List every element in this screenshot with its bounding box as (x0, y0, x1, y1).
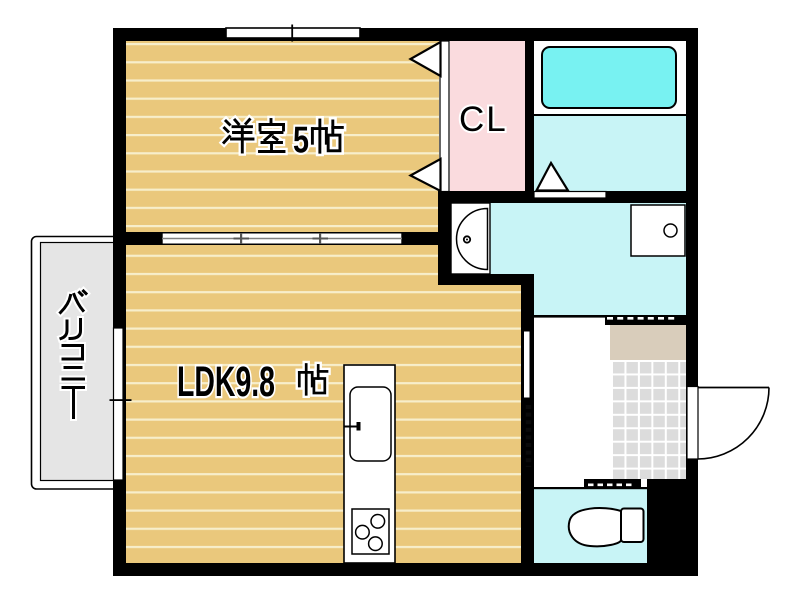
svg-text:CL: CL (459, 100, 508, 139)
svg-text:LDK9.8: LDK9.8 (177, 358, 275, 406)
svg-text:5: 5 (293, 120, 309, 161)
